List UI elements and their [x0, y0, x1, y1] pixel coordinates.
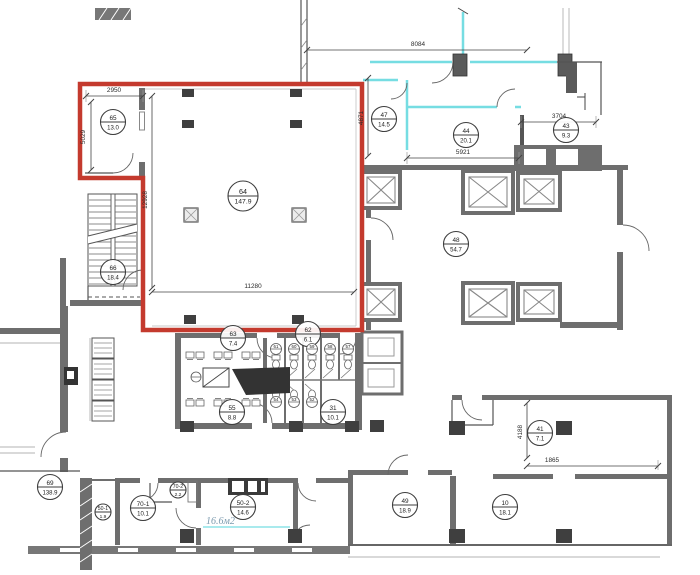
dimension-12928: 12928: [142, 191, 149, 209]
room-bubble-48: 4854.7: [444, 232, 469, 257]
svg-text:47: 47: [380, 112, 388, 119]
svg-text:138.9: 138.9: [42, 491, 58, 497]
svg-text:7.1: 7.1: [536, 437, 545, 443]
elevator-shaft: [518, 173, 560, 210]
left-corridor-walls: [0, 306, 114, 472]
stall-label-54: 54: [271, 397, 282, 408]
dimension-5921: 5921: [456, 149, 471, 156]
svg-text:18.1: 18.1: [499, 511, 511, 517]
bottom-left-rooms: [28, 478, 352, 570]
room-bubble-69: 69138.9: [38, 475, 63, 500]
svg-text:10.1: 10.1: [137, 512, 149, 518]
dimension-lines: [83, 47, 661, 470]
stall-label-52: 52: [307, 397, 318, 408]
room-bubble-66: 6618.4: [101, 260, 126, 285]
area-annotation: 16.6м2: [206, 516, 235, 527]
svg-text:9.3: 9.3: [562, 134, 571, 140]
svg-text:54: 54: [274, 397, 279, 402]
svg-text:18.9: 18.9: [399, 509, 411, 515]
svg-text:10.1: 10.1: [327, 416, 339, 422]
svg-text:60: 60: [292, 344, 297, 349]
stall-label-58: 58: [325, 344, 336, 355]
room-bubble-50-1: 50-11.9: [95, 504, 111, 520]
elevator-shaft: [362, 284, 400, 320]
svg-text:6.1: 6.1: [304, 338, 313, 344]
room-66-walls: [60, 258, 143, 306]
svg-text:52: 52: [310, 397, 315, 402]
svg-text:57: 57: [346, 344, 351, 349]
svg-text:18.4: 18.4: [107, 276, 119, 282]
room-bubble-10: 1018.1: [493, 495, 518, 520]
dimension-5029: 5029: [80, 129, 87, 144]
dimension-4188: 4188: [517, 424, 524, 439]
svg-text:10: 10: [501, 500, 509, 507]
dimension-8084: 8084: [411, 41, 426, 48]
svg-text:59: 59: [310, 344, 315, 349]
column-marker: [184, 208, 198, 222]
svg-text:31: 31: [329, 405, 337, 412]
louver-shaft: [90, 338, 114, 421]
room-bubble-47: 4714.5: [372, 107, 397, 132]
svg-text:7.4: 7.4: [229, 342, 238, 348]
svg-text:147.9: 147.9: [234, 199, 251, 206]
room-bubble-44: 4420.1: [454, 123, 479, 148]
elevator-shaft: [463, 283, 513, 323]
dimension-2950: 2950: [107, 87, 122, 94]
svg-text:43: 43: [562, 123, 570, 130]
svg-text:55: 55: [228, 405, 236, 412]
room-bubble-65: 6513.0: [101, 110, 126, 135]
svg-text:65: 65: [109, 115, 117, 122]
svg-text:66: 66: [109, 265, 117, 272]
svg-text:44: 44: [462, 128, 470, 135]
dimension-11280: 11280: [244, 283, 262, 290]
svg-text:50-1: 50-1: [98, 506, 108, 512]
floor-plan-drawing: 2950502912928112808084487159213704418818…: [0, 0, 700, 575]
service-rooms-below-lobby: [362, 332, 402, 432]
elevator-shaft: [463, 171, 513, 213]
room-bubble-63: 637.4: [221, 326, 246, 351]
room-bubble-49: 4918.9: [393, 493, 418, 518]
svg-text:50-2: 50-2: [237, 500, 250, 507]
svg-text:63: 63: [229, 331, 237, 338]
svg-text:54.7: 54.7: [450, 248, 462, 254]
stall-label-61: 61: [271, 344, 282, 355]
room-bubble-62: 626.1: [296, 322, 321, 347]
stall-label-57: 57: [343, 344, 354, 355]
stall-label-59: 59: [307, 344, 318, 355]
svg-text:70-2: 70-2: [173, 484, 183, 490]
svg-text:64: 64: [239, 187, 247, 196]
room-bubble-64: 64147.9: [228, 181, 258, 211]
svg-text:48: 48: [452, 237, 460, 244]
dimension-4871: 4871: [358, 110, 365, 125]
svg-text:62: 62: [304, 327, 312, 334]
room-bubble-41: 417.1: [528, 421, 553, 446]
svg-text:49: 49: [401, 498, 409, 505]
svg-text:2.2: 2.2: [175, 492, 182, 498]
stall-label-60: 60: [289, 344, 300, 355]
svg-text:58: 58: [328, 344, 333, 349]
svg-text:13.0: 13.0: [107, 126, 119, 132]
dimension-1865: 1865: [545, 457, 560, 464]
svg-text:69: 69: [46, 480, 54, 487]
svg-text:20.1: 20.1: [460, 139, 472, 145]
room-bubble-70-2: 70-22.2: [170, 482, 186, 498]
elevator-shaft: [362, 172, 400, 208]
room-bubble-55: 558.8: [220, 400, 245, 425]
svg-text:8.8: 8.8: [228, 416, 237, 422]
upper-wall-stubs: [95, 0, 569, 84]
svg-text:14.5: 14.5: [378, 123, 390, 129]
svg-text:53: 53: [292, 397, 297, 402]
svg-text:14.6: 14.6: [237, 511, 249, 517]
bottom-right-rooms: [348, 395, 672, 557]
svg-text:61: 61: [274, 344, 279, 349]
floor-plan: 2950502912928112808084487159213704418818…: [0, 0, 700, 575]
column-marker: [292, 208, 306, 222]
svg-text:1.9: 1.9: [100, 514, 107, 520]
svg-text:70-1: 70-1: [137, 501, 150, 508]
stall-label-53: 53: [289, 397, 300, 408]
svg-text:41: 41: [536, 426, 544, 433]
room-bubble-31: 3110.1: [321, 400, 346, 425]
room-bubble-43: 439.3: [554, 118, 579, 143]
elevator-shaft: [518, 284, 560, 320]
room-bubble-70-1: 70-110.1: [131, 496, 156, 521]
